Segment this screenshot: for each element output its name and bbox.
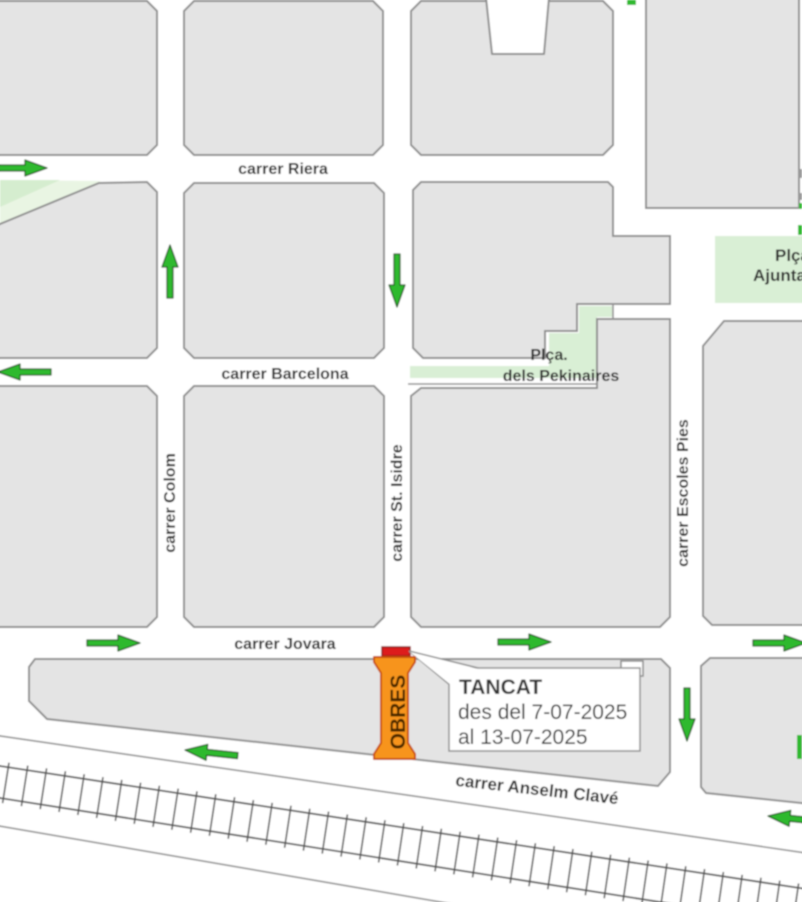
svg-text:al 13-07-2025: al 13-07-2025 — [458, 726, 588, 749]
svg-text:Plça: Plça — [775, 246, 802, 265]
svg-text:Plça.: Plça. — [530, 347, 567, 364]
svg-text:carrer Riera: carrer Riera — [238, 161, 328, 178]
svg-text:carrer Escoles Pies: carrer Escoles Pies — [675, 419, 692, 567]
svg-text:OBRES: OBRES — [387, 675, 410, 750]
svg-text:TANCAT: TANCAT — [459, 676, 542, 699]
svg-text:carrer Jovara: carrer Jovara — [234, 636, 336, 653]
svg-text:Ajuntament: Ajuntament — [753, 266, 802, 285]
svg-text:dels Pekinaires: dels Pekinaires — [503, 368, 620, 385]
svg-text:carrer St. Isidre: carrer St. Isidre — [389, 444, 406, 562]
svg-text:carrer Barcelona: carrer Barcelona — [221, 366, 348, 383]
svg-text:des del 7-07-2025: des del 7-07-2025 — [458, 701, 627, 724]
svg-text:carrer Colom: carrer Colom — [162, 453, 179, 553]
